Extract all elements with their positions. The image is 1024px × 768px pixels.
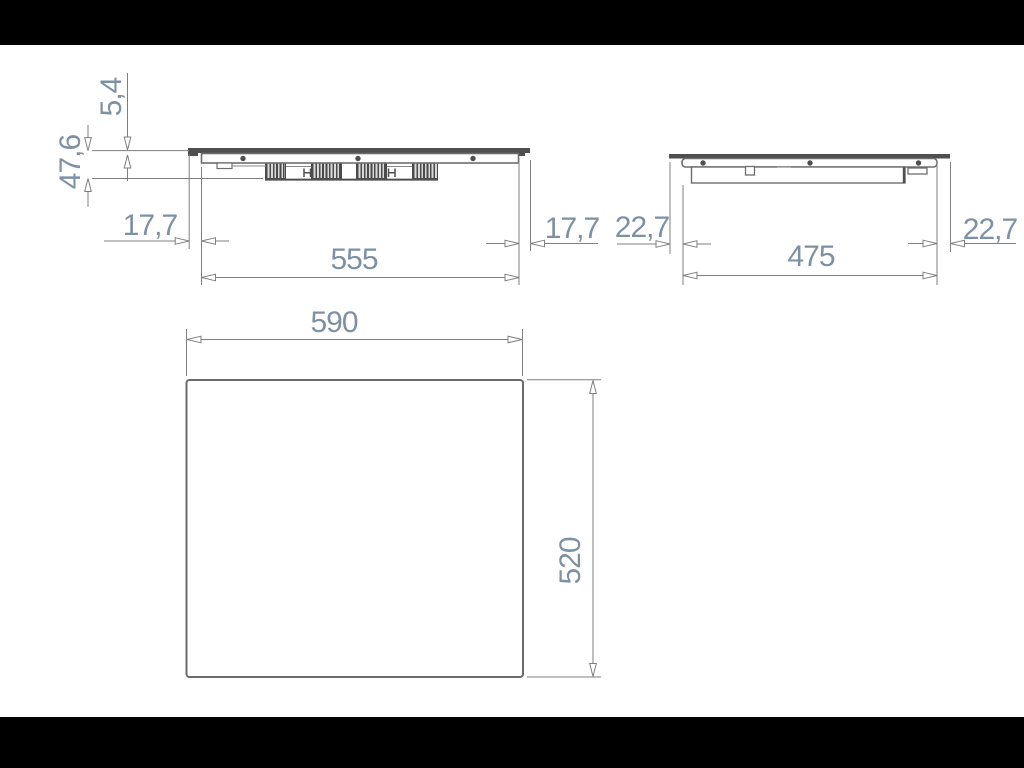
dim-side-overhang-right-label: 22,7	[963, 215, 1017, 245]
letterbox-bottom	[0, 717, 1024, 768]
dim-total-height-label: 47,6	[56, 135, 86, 189]
lower-housing	[692, 167, 906, 183]
glass-outline	[187, 380, 524, 677]
terminal-mark	[389, 169, 396, 178]
glass-panel	[188, 148, 530, 153]
screw	[700, 160, 705, 165]
dim-body-depth-label: 475	[787, 242, 834, 272]
screw	[470, 156, 475, 161]
dim-overhang-right-label: 17,7	[545, 214, 599, 244]
junction-tab	[746, 167, 755, 176]
dim-overhang-left-label: 17,7	[123, 211, 177, 241]
dim-side-overhang-left-label: 22,7	[615, 213, 669, 243]
side-section-view	[669, 154, 950, 183]
dimension-drawing	[0, 0, 1024, 768]
letterbox-top	[0, 0, 1024, 45]
dim-body-width-label: 555	[330, 245, 377, 275]
dim-overall-width-label: 590	[310, 308, 357, 338]
terminal-mark	[304, 169, 311, 178]
mounting-bracket	[908, 168, 927, 174]
screw	[807, 160, 812, 165]
mounting-bracket	[217, 163, 232, 169]
screw	[240, 156, 245, 161]
screw	[355, 156, 360, 161]
technical-drawing-page: 5,4 47,6 17,7 555 17,7 22,7 475 22,7 590…	[0, 0, 1024, 768]
dim-overall-depth-label: 520	[556, 537, 586, 584]
front-section-view	[188, 148, 530, 180]
screw	[916, 160, 921, 165]
dim-glass-height-label: 5,4	[97, 78, 127, 117]
top-view	[187, 380, 524, 677]
